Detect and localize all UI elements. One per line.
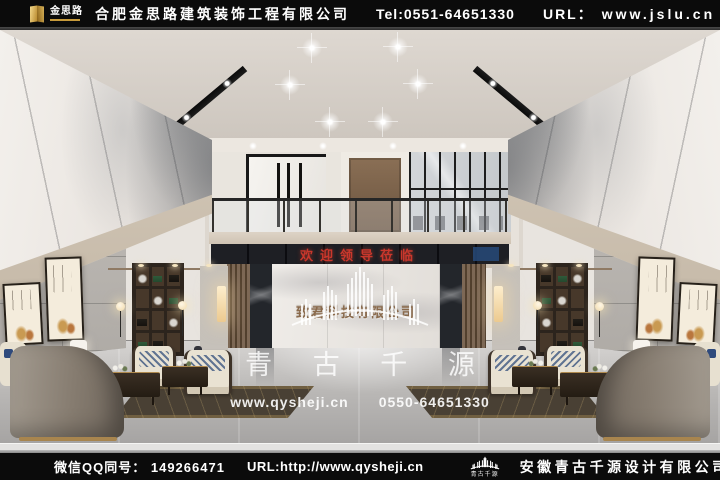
- scene-left-side: [0, 30, 360, 450]
- shelf-cell: [540, 311, 553, 330]
- scene-right-side: [360, 30, 720, 450]
- framed-artwork: [45, 256, 85, 341]
- side-cabinet: [588, 268, 612, 358]
- footer-qq-label: 微信QQ同号：: [54, 460, 146, 475]
- shelf-cell: [136, 311, 149, 330]
- shelf-cell: [167, 311, 180, 330]
- patterned-cushion: [139, 351, 169, 367]
- shelf-cell: [556, 289, 569, 308]
- footer-bar: 微信QQ同号： 149266471 URL:http://www.qysheji…: [0, 453, 720, 480]
- soffit-downlight: [542, 264, 548, 267]
- soffit-downlight: [138, 264, 144, 267]
- jinsilu-logo-text: 金思路: [50, 7, 83, 17]
- shelf-cell: [571, 267, 584, 286]
- flower-decor: [112, 364, 128, 372]
- sphere-floor-lamp: [533, 301, 542, 310]
- flower-decor: [528, 359, 544, 367]
- soffit-downlight: [508, 264, 514, 267]
- side-cabinet: [520, 268, 536, 358]
- patterned-cushion: [551, 351, 581, 367]
- side-cabinet: [184, 268, 200, 358]
- framed-artwork: [636, 256, 676, 341]
- footer-url: URL:http://www.qysheji.cn: [247, 459, 424, 474]
- flower-decor: [592, 364, 608, 372]
- qingu-qianyuan-logo-icon: [470, 456, 500, 471]
- soffit-downlight: [576, 264, 582, 267]
- header-url-label: URL：: [543, 6, 594, 22]
- framed-artwork: [676, 282, 717, 346]
- shelf-cell: [571, 289, 584, 308]
- shelf-cell: [136, 289, 149, 308]
- soffit-downlight: [172, 264, 178, 267]
- jinsilu-logo-icon: [30, 5, 45, 23]
- wingback-chair: [10, 346, 124, 438]
- wall-sconce-light: [494, 286, 503, 322]
- flower-decor: [176, 359, 192, 367]
- jinsilu-logo: 金思路: [50, 7, 83, 21]
- header-url: URL：www.jslu.cn: [543, 4, 715, 24]
- shelf-cell: [152, 289, 165, 308]
- footer-logo-caption: 青古千源: [471, 472, 499, 478]
- header-company-name: 合肥金思路建筑装饰工程有限公司: [95, 4, 350, 24]
- sphere-floor-lamp: [116, 302, 125, 311]
- framed-artwork: [2, 282, 43, 346]
- shelf-cell: [556, 267, 569, 286]
- footer-qq-number: 149266471: [151, 460, 225, 475]
- wall-sconce-light: [217, 286, 226, 322]
- interior-rendering: 欢迎领导莅临 致君科技有限公司: [0, 30, 720, 450]
- display-shelf: [132, 263, 184, 356]
- shelf-cell: [540, 267, 553, 286]
- tea-table: [162, 366, 208, 387]
- shelf-cell: [571, 311, 584, 330]
- soffit-downlight: [206, 264, 212, 267]
- tea-table: [512, 366, 558, 387]
- footer-qq: 微信QQ同号： 149266471: [54, 457, 225, 476]
- wingback-chair: [596, 346, 710, 438]
- sphere-floor-lamp: [178, 301, 187, 310]
- footer-company-name: 安徽青古千源设计有限公司: [520, 457, 720, 477]
- header-phone: Tel:0551-64651330: [376, 6, 515, 22]
- qingu-qianyuan-logo: 青古千源: [470, 456, 500, 478]
- logo-underline: [50, 19, 80, 21]
- display-shelf: [536, 263, 588, 356]
- sphere-floor-lamp: [595, 302, 604, 311]
- shelf-cell: [167, 267, 180, 286]
- promo-image: 金思路 合肥金思路建筑装饰工程有限公司 Tel:0551-64651330 UR…: [0, 0, 720, 480]
- shelf-cell: [152, 267, 165, 286]
- shelf-cell: [556, 311, 569, 330]
- header-bar: 金思路 合肥金思路建筑装饰工程有限公司 Tel:0551-64651330 UR…: [0, 0, 720, 27]
- shelf-cell: [136, 267, 149, 286]
- shelf-cell: [152, 311, 165, 330]
- header-url-value: www.jslu.cn: [602, 6, 715, 22]
